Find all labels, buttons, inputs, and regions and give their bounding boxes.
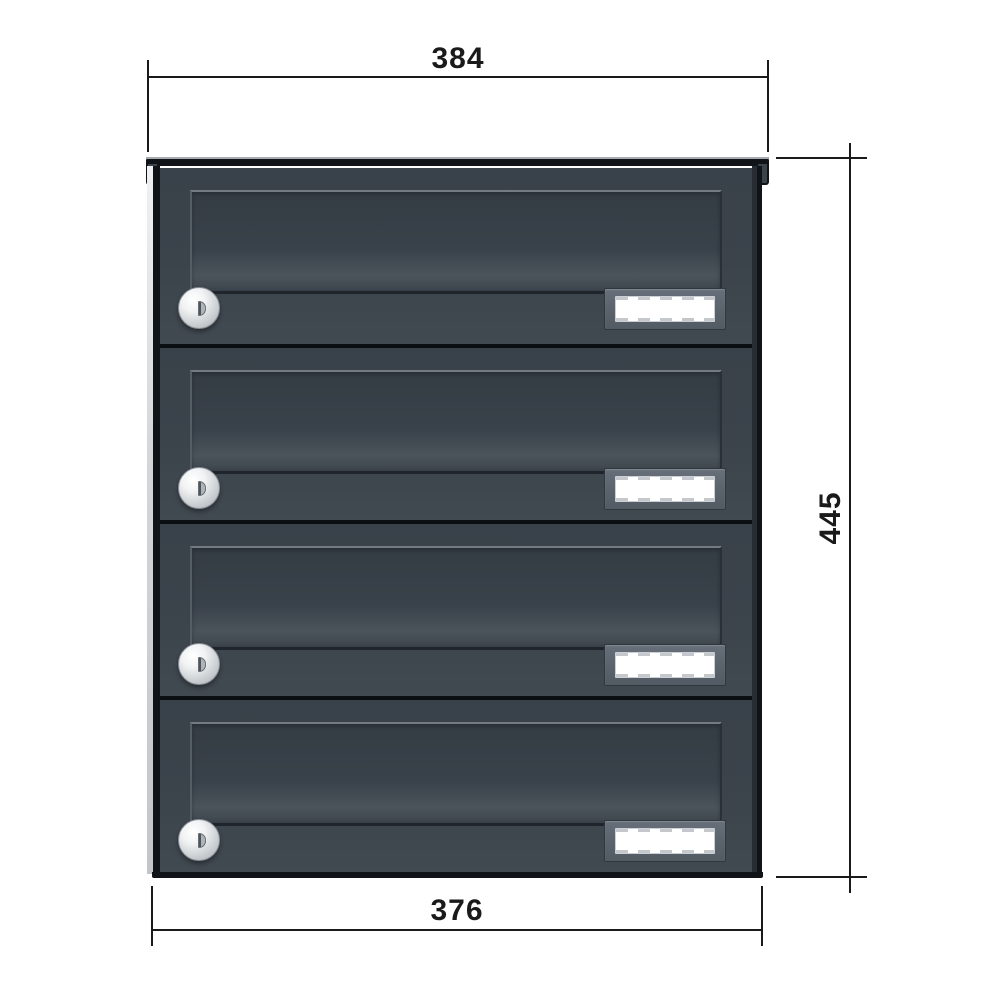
mailbox-lid xyxy=(146,159,769,166)
keyhole-icon xyxy=(198,833,206,848)
keyhole-icon xyxy=(198,301,206,316)
unit-stack xyxy=(160,168,752,872)
nameplate xyxy=(604,288,726,330)
body-bottom-edge xyxy=(152,872,763,878)
mail-flap xyxy=(190,722,722,826)
keyhole-icon xyxy=(198,657,206,672)
keyhole-icon xyxy=(198,481,206,496)
dim-bottom-extension-right xyxy=(761,886,763,946)
nameplate xyxy=(604,644,726,686)
nameplate xyxy=(604,820,726,862)
mailbox-unit xyxy=(160,344,752,520)
lock-icon xyxy=(178,643,220,685)
dim-right-extension-bottom xyxy=(776,876,867,878)
mailbox-unit xyxy=(160,520,752,696)
mail-flap xyxy=(190,546,722,650)
dim-top-extension-left xyxy=(147,60,149,152)
nameplate-window xyxy=(615,652,715,678)
dim-bottom-extension-left xyxy=(151,886,153,946)
body-right-edge xyxy=(757,166,762,874)
dim-label-right-height: 445 xyxy=(816,463,846,573)
lock-icon xyxy=(178,819,220,861)
lock-icon xyxy=(178,467,220,509)
dim-top-extension-right xyxy=(767,60,769,152)
dim-bottom-line xyxy=(152,929,763,931)
dim-label-bottom-width: 376 xyxy=(377,896,537,926)
dim-right-extension-top xyxy=(776,157,867,159)
nameplate-window xyxy=(615,296,715,322)
dim-top-line xyxy=(148,76,769,78)
mail-flap xyxy=(190,370,722,474)
dim-right-line xyxy=(849,143,851,893)
nameplate-window xyxy=(615,476,715,502)
nameplate xyxy=(604,468,726,510)
body-left-edge xyxy=(153,166,160,874)
lock-icon xyxy=(178,287,220,329)
mailbox-unit xyxy=(160,696,752,872)
mail-flap xyxy=(190,190,722,294)
dim-label-top-width: 384 xyxy=(378,44,538,74)
mailbox-unit xyxy=(160,168,752,344)
nameplate-window xyxy=(615,828,715,854)
